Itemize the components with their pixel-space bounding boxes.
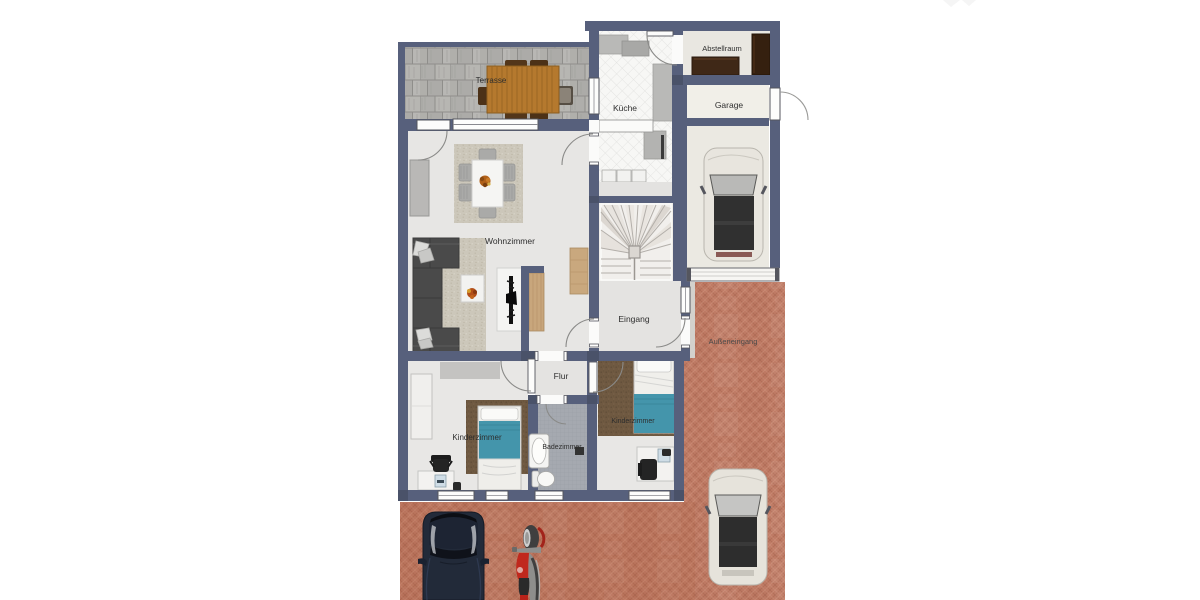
svg-text:Küche: Küche: [613, 103, 637, 113]
svg-text:Badezimmer: Badezimmer: [542, 444, 582, 451]
svg-text:Kinderzimmer: Kinderzimmer: [611, 418, 655, 425]
svg-text:Garage: Garage: [715, 100, 744, 110]
svg-text:Eingang: Eingang: [618, 314, 649, 324]
svg-text:Flur: Flur: [554, 371, 569, 381]
svg-text:Wohnzimmer: Wohnzimmer: [485, 236, 535, 246]
svg-text:Kinderzimmer: Kinderzimmer: [452, 433, 502, 442]
svg-text:Abstellraum: Abstellraum: [702, 44, 742, 53]
svg-text:Terrasse: Terrasse: [476, 76, 507, 85]
svg-text:Außeneingang: Außeneingang: [709, 337, 758, 346]
